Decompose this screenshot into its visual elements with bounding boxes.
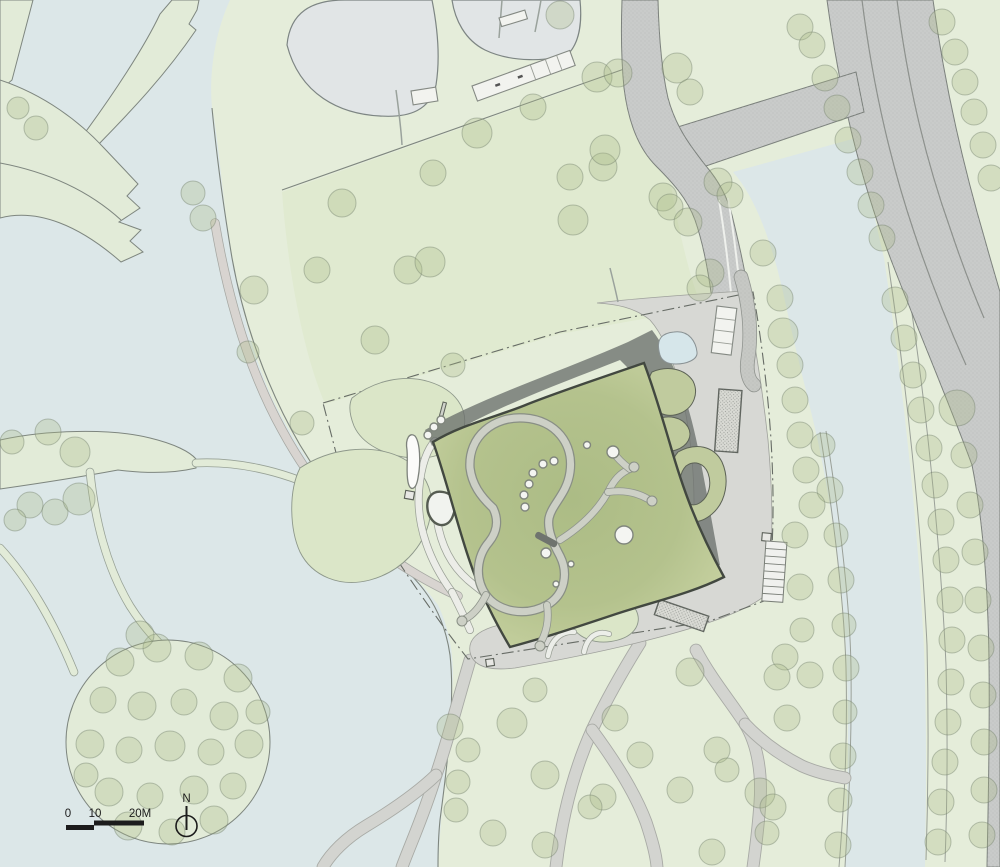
tree [916,435,942,461]
tree [908,397,934,423]
tree [676,658,704,686]
tree [717,182,743,208]
tree [935,709,961,735]
scale-label-10: 10 [89,808,102,820]
tree [235,730,263,758]
tree [604,59,632,87]
tree [24,116,48,140]
tree [929,9,955,35]
tree [677,79,703,105]
tree [933,547,959,573]
tree [578,795,602,819]
tree [869,225,895,251]
tree [699,839,725,865]
site-marker [486,658,495,666]
tree [35,419,61,445]
tree [155,731,185,761]
tree [116,737,142,763]
tree [793,457,819,483]
tree [667,777,693,803]
tree [828,788,852,812]
tree [200,806,228,834]
roof-path-bulb [647,496,657,506]
tree [63,483,95,515]
tree [932,749,958,775]
tree [171,689,197,715]
tree [181,181,205,205]
tree [787,422,813,448]
tree [847,159,873,185]
tree [437,714,463,740]
tree [750,240,776,266]
tree [520,94,546,120]
tree [446,770,470,794]
tree [925,829,951,855]
skylight [437,416,445,424]
tree [969,822,995,848]
tree [928,509,954,535]
tree [968,635,994,661]
tree [290,411,314,435]
skylight [553,581,559,587]
tree [532,832,558,858]
tree [159,819,185,845]
skylight [541,548,551,558]
scale-label-0: 0 [65,808,71,820]
tree [220,773,246,799]
scale-bar-segment [94,821,144,826]
tree [767,285,793,311]
tree [76,730,104,758]
tree [4,509,26,531]
tree [627,742,653,768]
roof-path-bulb [535,641,545,651]
tree [185,642,213,670]
skylight [529,469,537,477]
tree [210,702,238,730]
tree [962,539,988,565]
tree [715,758,739,782]
tree [128,692,156,720]
tree [833,700,857,724]
tree [602,705,628,731]
site-plan-svg: 0 10 20M N [0,0,1000,867]
tree [74,763,98,787]
tree [557,164,583,190]
tree [971,777,997,803]
tree [456,738,480,762]
tree [928,789,954,815]
scale-label-20m: 20M [129,808,151,820]
tree [558,205,588,235]
skylight [568,561,574,567]
tree [891,325,917,351]
tree [811,433,835,457]
tree [137,783,163,809]
tree [237,341,259,363]
tree [937,587,963,613]
scale-bar-segment [66,825,94,830]
tree [833,655,859,681]
tree [828,567,854,593]
tree [970,682,996,708]
skylight [521,503,529,511]
tree [939,390,975,426]
tree [462,118,492,148]
tree [782,387,808,413]
tree [951,442,977,468]
tree [922,472,948,498]
tree [106,648,134,676]
tree [832,613,856,637]
tree [824,523,848,547]
ring-skylight [607,446,619,458]
tree [971,729,997,755]
tree [444,798,468,822]
roof-path-bulb [629,462,639,472]
tree [858,192,884,218]
skylight [550,457,558,465]
tree [531,761,559,789]
tree [90,687,116,713]
tree [441,353,465,377]
tree [198,739,224,765]
tree [961,99,987,125]
tree [812,65,838,91]
large-skylight [615,526,633,544]
tree [0,430,24,454]
tree [942,39,968,65]
tree [957,492,983,518]
tree [777,352,803,378]
tree [939,627,965,653]
tree [824,95,850,121]
site-marker [762,533,772,542]
tree [768,318,798,348]
tree [361,326,389,354]
tree [674,208,702,236]
tree [7,97,29,119]
tree [938,669,964,695]
skylight [520,491,528,499]
hatched-building [715,389,742,452]
tree [790,618,814,642]
tree [764,664,790,690]
tree [95,778,123,806]
tree [497,708,527,738]
tree [787,574,813,600]
tree [830,743,856,769]
tree [590,135,620,165]
tree [965,587,991,613]
tree [126,621,154,649]
tree [882,287,908,313]
tree [799,32,825,58]
tree [825,832,851,858]
tree [970,132,996,158]
small-skylight [584,442,591,449]
garden-pond-sliver [407,435,420,489]
skylight [424,431,432,439]
tree [760,794,786,820]
tree [952,69,978,95]
tree [60,437,90,467]
skylight [539,460,547,468]
tree [420,160,446,186]
tree [304,257,330,283]
skylight [525,480,533,488]
tree [246,700,270,724]
north-label: N [182,793,190,805]
tree [835,127,861,153]
parking-lot [762,541,787,602]
tree [662,53,692,83]
tree [546,1,574,29]
tree [240,276,268,304]
roof-path-bulb [457,616,467,626]
tree [782,522,808,548]
tree [978,165,1000,191]
tree [799,492,825,518]
tree [900,362,926,388]
site-marker [404,490,414,499]
tree [797,662,823,688]
tree [755,821,779,845]
site-plan: 0 10 20M N [0,0,1000,867]
tree [224,664,252,692]
tree [687,275,713,301]
tree [480,820,506,846]
skylight [430,423,438,431]
tree [190,205,216,231]
tree [774,705,800,731]
tree [328,189,356,217]
tree [415,247,445,277]
tree [523,678,547,702]
